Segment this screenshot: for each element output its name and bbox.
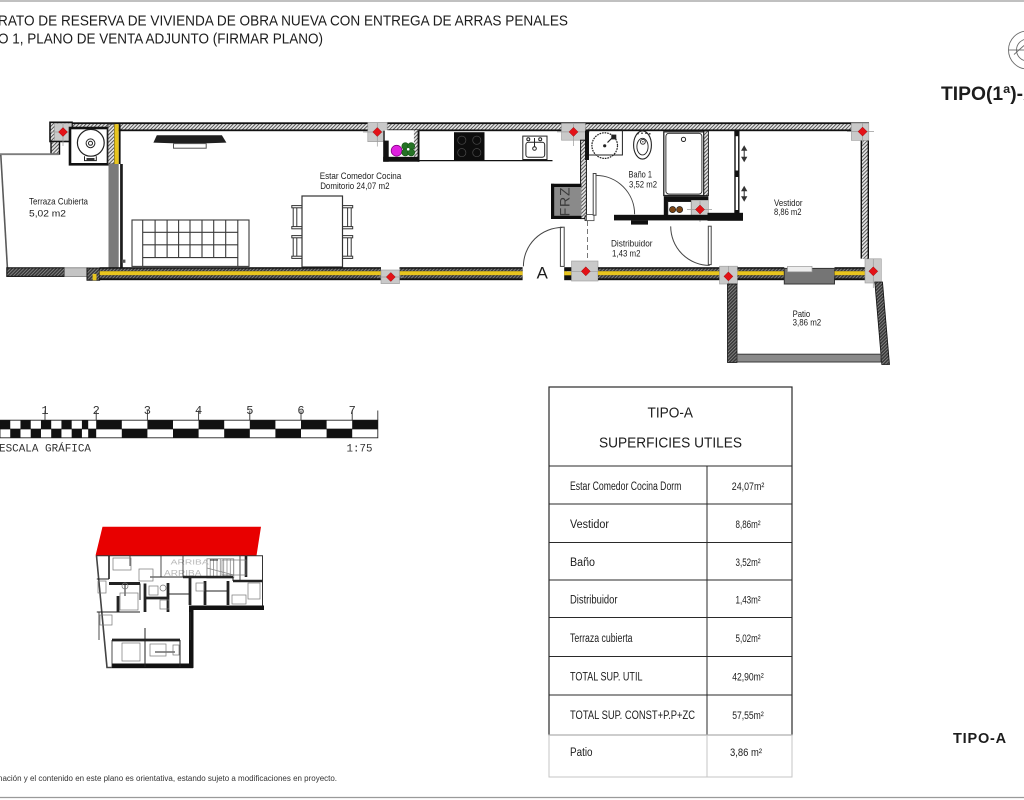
svg-text:nación y el contenido en este: nación y el contenido en este plano es o… <box>0 774 337 783</box>
svg-text:1:75: 1:75 <box>347 444 373 456</box>
svg-text:8,86 m2: 8,86 m2 <box>774 207 802 218</box>
svg-text:6: 6 <box>297 404 304 418</box>
svg-text:ESCALA GRÁFICA: ESCALA GRÁFICA <box>0 442 92 456</box>
svg-text:8,86m²: 8,86m² <box>736 519 761 531</box>
svg-text:A: A <box>537 264 549 283</box>
svg-text:3,86 m2: 3,86 m2 <box>793 317 822 328</box>
svg-text:O 1, PLANO DE VENTA ADJUNTO (F: O 1, PLANO DE VENTA ADJUNTO (FIRMAR PLAN… <box>0 32 323 48</box>
svg-text:57,55m²: 57,55m² <box>732 710 764 722</box>
svg-text:RATO DE RESERVA DE VIVIENDA DE: RATO DE RESERVA DE VIVIENDA DE OBRA NUEV… <box>0 14 568 30</box>
svg-text:3,52m²: 3,52m² <box>736 557 761 569</box>
svg-text:FRZ: FRZ <box>557 187 573 217</box>
svg-text:1,43 m2: 1,43 m2 <box>612 248 641 259</box>
svg-text:TOTAL SUP. CONST+P.P+ZC: TOTAL SUP. CONST+P.P+ZC <box>570 710 695 722</box>
svg-text:1,43m²: 1,43m² <box>736 595 761 607</box>
svg-text:24,07m²: 24,07m² <box>732 481 765 493</box>
svg-text:3,86 m²: 3,86 m² <box>730 747 762 759</box>
svg-text:42,90m²: 42,90m² <box>732 672 764 684</box>
svg-text:7: 7 <box>349 404 356 418</box>
svg-text:TIPO(1ª)-A: TIPO(1ª)-A <box>941 84 1024 105</box>
svg-text:3: 3 <box>144 404 151 418</box>
svg-text:Distribuidor: Distribuidor <box>570 595 618 607</box>
svg-text:5,02m²: 5,02m² <box>736 633 761 645</box>
svg-text:Vestidor: Vestidor <box>570 519 609 531</box>
svg-text:TIPO-A: TIPO-A <box>953 731 1007 747</box>
svg-text:Domitorio 24,07 m2: Domitorio 24,07 m2 <box>320 181 389 192</box>
svg-text:Terraza cubierta: Terraza cubierta <box>570 633 633 645</box>
svg-text:ARRIBA: ARRIBA <box>171 558 209 567</box>
svg-text:Terraza Cubierta: Terraza Cubierta <box>29 196 89 207</box>
svg-text:5,02 m2: 5,02 m2 <box>29 209 66 220</box>
svg-text:Baño: Baño <box>570 557 595 569</box>
svg-text:2: 2 <box>93 404 100 418</box>
svg-text:TOTAL SUP. UTIL: TOTAL SUP. UTIL <box>570 672 643 684</box>
svg-text:Estar Comedor Cocina Dorm: Estar Comedor Cocina Dorm <box>570 481 681 493</box>
svg-text:3,52 m2: 3,52 m2 <box>629 180 657 191</box>
svg-text:4: 4 <box>195 404 202 418</box>
svg-text:1: 1 <box>41 404 48 418</box>
svg-text:Patio: Patio <box>570 747 593 759</box>
svg-text:5: 5 <box>246 404 253 418</box>
svg-text:TIPO-A: TIPO-A <box>648 405 694 422</box>
svg-text:SUPERFICIES UTILES: SUPERFICIES UTILES <box>599 435 742 452</box>
